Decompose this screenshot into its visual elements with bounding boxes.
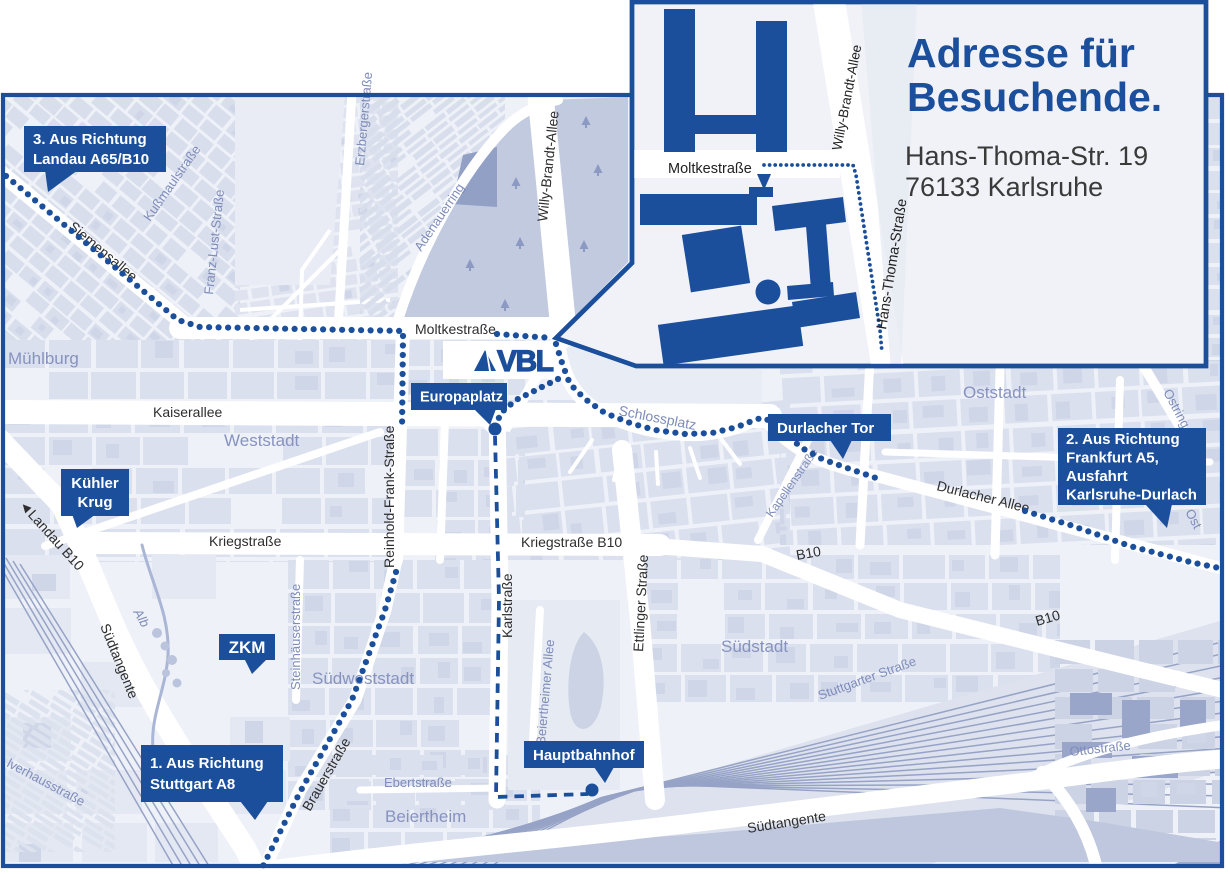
svg-text:Kaiserallee: Kaiserallee (153, 404, 222, 420)
svg-text:Kriegstraße: Kriegstraße (209, 533, 282, 549)
svg-text:Karlstraße: Karlstraße (499, 573, 515, 638)
svg-text:Besuchende.: Besuchende. (907, 74, 1162, 120)
svg-text:Frankfurt A5,: Frankfurt A5, (1066, 450, 1159, 467)
svg-text:1. Aus Richtung: 1. Aus Richtung (150, 755, 264, 772)
svg-text:Kriegstraße B10: Kriegstraße B10 (521, 534, 622, 550)
svg-text:Hauptbahnhof: Hauptbahnhof (533, 747, 636, 764)
svg-text:Stuttgart A8: Stuttgart A8 (150, 776, 235, 793)
svg-text:Reinhold-Frank-Straße: Reinhold-Frank-Straße (381, 425, 397, 568)
svg-text:Mühlburg: Mühlburg (8, 349, 79, 368)
svg-text:Ausfahrt: Ausfahrt (1066, 468, 1128, 485)
svg-text:Beiertheim: Beiertheim (385, 807, 466, 826)
svg-text:Weststadt: Weststadt (224, 431, 300, 450)
svg-text:Durlacher Tor: Durlacher Tor (777, 420, 874, 437)
svg-text:Hans-Thoma-Str. 19: Hans-Thoma-Str. 19 (905, 141, 1148, 171)
svg-text:Adresse für: Adresse für (907, 30, 1135, 76)
svg-text:VBL: VBL (497, 345, 554, 378)
svg-text:Karlsruhe-Durlach: Karlsruhe-Durlach (1066, 487, 1197, 504)
svg-text:Kühler: Kühler (71, 475, 119, 492)
svg-text:76133 Karlsruhe: 76133 Karlsruhe (905, 172, 1103, 202)
svg-text:Steinhäuserstraße: Steinhäuserstraße (288, 584, 303, 690)
svg-text:Moltkestraße: Moltkestraße (668, 161, 752, 177)
svg-text:Landau A65/B10: Landau A65/B10 (33, 151, 149, 168)
svg-text:3. Aus Richtung: 3. Aus Richtung (33, 131, 147, 148)
svg-text:ZKM: ZKM (229, 638, 266, 657)
svg-text:Europaplatz: Europaplatz (420, 390, 503, 406)
svg-text:Moltkestraße: Moltkestraße (415, 321, 496, 337)
svg-text:Ebertstraße: Ebertstraße (384, 775, 452, 790)
svg-text:Krug: Krug (78, 494, 113, 511)
svg-text:Südstadt: Südstadt (721, 637, 788, 656)
svg-text:2. Aus Richtung: 2. Aus Richtung (1066, 431, 1180, 448)
svg-text:Oststadt: Oststadt (963, 383, 1027, 402)
